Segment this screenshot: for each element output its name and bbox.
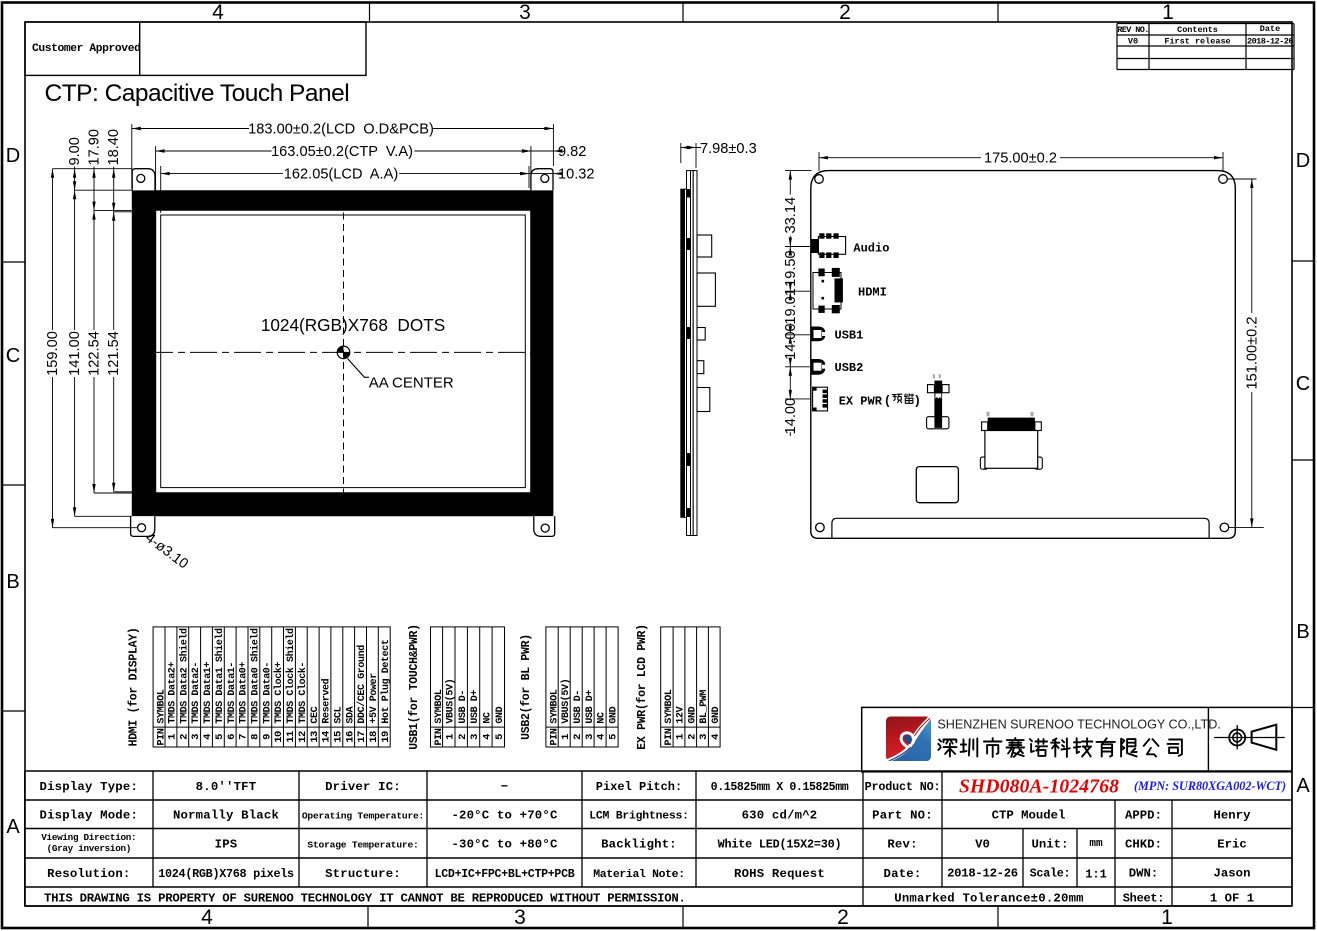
svg-text:Customer Approved: Customer Approved (32, 43, 140, 55)
svg-text:First release: First release (1164, 37, 1230, 47)
svg-text:TMDS Data2+: TMDS Data2+ (168, 662, 179, 724)
svg-text:TMDS Clock-: TMDS Clock- (297, 662, 309, 724)
svg-text:Structure:: Structure: (325, 867, 401, 881)
svg-text:D: D (1296, 150, 1310, 172)
svg-text:SHD080A-1024768: SHD080A-1024768 (959, 777, 1119, 798)
svg-text:A: A (6, 816, 20, 838)
svg-text:17.90: 17.90 (87, 129, 103, 166)
svg-text:Normally Black: Normally Black (173, 809, 280, 823)
svg-text:IPS: IPS (215, 838, 238, 852)
svg-text:2: 2 (686, 734, 698, 740)
svg-text:162.05(LCD A.A): 162.05(LCD A.A) (284, 166, 398, 182)
svg-text:12: 12 (297, 731, 309, 743)
svg-text:159.00: 159.00 (45, 331, 61, 376)
svg-text:SYMBOL: SYMBOL (664, 689, 675, 724)
svg-text:10: 10 (273, 731, 285, 743)
svg-text:-30°C to +80°C: -30°C to +80°C (451, 838, 558, 852)
svg-text:15: 15 (333, 731, 345, 743)
svg-text:Product NO:: Product NO: (865, 780, 941, 794)
svg-text:7.98±0.3: 7.98±0.3 (700, 141, 757, 157)
svg-text:): ) (914, 394, 922, 408)
svg-text:TMDS Clock+: TMDS Clock+ (273, 662, 285, 724)
svg-text:9.82: 9.82 (558, 144, 586, 160)
svg-text:Scale:: Scale: (1030, 867, 1071, 881)
svg-text:USB2: USB2 (835, 361, 864, 375)
svg-text:141.00: 141.00 (67, 331, 83, 376)
svg-text:Part NO:: Part NO: (872, 809, 933, 823)
svg-text:Unit:: Unit: (1032, 838, 1069, 852)
svg-text:1: 1 (675, 734, 687, 740)
svg-text:Date: Date (1260, 24, 1280, 34)
svg-text:(Gray inversion): (Gray inversion) (47, 843, 131, 854)
svg-text:CTP Moudel: CTP Moudel (992, 809, 1066, 823)
svg-text:3: 3 (190, 734, 202, 740)
svg-text:VBUS(5V): VBUS(5V) (560, 679, 572, 724)
svg-text:Driver IC:: Driver IC: (325, 780, 401, 794)
svg-text:1: 1 (1161, 906, 1173, 929)
svg-text:9: 9 (261, 734, 273, 740)
svg-text:PIN: PIN (549, 728, 560, 745)
svg-text:HDMI (for DISPLAY): HDMI (for DISPLAY) (128, 628, 141, 747)
svg-text:TMDS Data2-: TMDS Data2- (191, 662, 202, 724)
svg-text:TMDS Data2 Shield: TMDS Data2 Shield (178, 628, 190, 724)
svg-text:SYMBOL: SYMBOL (549, 689, 560, 724)
svg-text:(MPN: SUR80XGA002-WCT): (MPN: SUR80XGA002-WCT) (1134, 779, 1286, 793)
svg-text:Date:: Date: (884, 867, 922, 881)
svg-text:163.05±0.2(CTP V.A): 163.05±0.2(CTP V.A) (271, 144, 413, 160)
svg-text:Reserved: Reserved (321, 678, 333, 723)
svg-text:13: 13 (309, 731, 321, 743)
svg-text:CHKD:: CHKD: (1125, 838, 1162, 852)
svg-text:Eric: Eric (1217, 838, 1247, 852)
svg-text:14.00: 14.00 (783, 323, 799, 360)
svg-text:7: 7 (238, 734, 250, 740)
svg-text:1: 1 (560, 734, 572, 740)
svg-text:1: 1 (1162, 1, 1174, 24)
svg-text:1: 1 (444, 734, 456, 740)
svg-text:−: − (501, 780, 509, 794)
svg-text:Viewing Direction:: Viewing Direction: (41, 832, 136, 843)
svg-text:TMDS Data1 Shield: TMDS Data1 Shield (214, 628, 226, 724)
svg-text:B: B (6, 571, 19, 593)
svg-text:D: D (6, 145, 20, 167)
svg-text:Operating Temperature:: Operating Temperature: (302, 811, 424, 822)
svg-text:Audio: Audio (853, 241, 889, 255)
svg-text:4: 4 (482, 734, 494, 740)
svg-text:6: 6 (226, 734, 238, 740)
svg-text:LCD+IC+FPC+BL+CTP+PCB: LCD+IC+FPC+BL+CTP+PCB (435, 868, 575, 881)
svg-text:Material Note:: Material Note: (593, 869, 685, 881)
svg-text:THIS DRAWING IS PROPERTY OF SU: THIS DRAWING IS PROPERTY OF SURENOO TECH… (44, 892, 686, 906)
svg-text:USB1(for TOUCH&PWR): USB1(for TOUCH&PWR) (408, 624, 421, 749)
svg-text:121.54: 121.54 (106, 331, 122, 376)
svg-text:14.00: 14.00 (783, 398, 799, 435)
svg-text:2018-12-26: 2018-12-26 (1247, 37, 1293, 47)
svg-text:USB D+: USB D+ (585, 690, 596, 724)
svg-text:TMDS Data1+: TMDS Data1+ (203, 662, 214, 724)
svg-text:4: 4 (596, 734, 608, 740)
svg-text:1 OF 1: 1 OF 1 (1210, 892, 1254, 906)
svg-text:11: 11 (285, 731, 297, 743)
svg-text:CTP: Capacitive Touch Panel: CTP: Capacitive Touch Panel (45, 80, 350, 107)
svg-text:18: 18 (368, 731, 380, 743)
svg-text:TMDS Data0 Shield: TMDS Data0 Shield (250, 628, 262, 724)
svg-text:Resolution:: Resolution: (47, 867, 130, 881)
svg-text:VBUS(5V): VBUS(5V) (444, 679, 456, 724)
svg-text:3: 3 (514, 906, 526, 929)
svg-text:(: ( (884, 394, 892, 408)
svg-text:3: 3 (584, 734, 596, 740)
svg-text:LCM Brightness:: LCM Brightness: (589, 811, 689, 823)
svg-text:10.32: 10.32 (558, 166, 595, 182)
svg-text:4: 4 (202, 734, 214, 740)
svg-text:SYMBOL: SYMBOL (156, 689, 167, 724)
svg-text:19.01: 19.01 (783, 288, 799, 325)
svg-text:630 cd/m^2: 630 cd/m^2 (742, 809, 818, 823)
svg-text:BL_PWM: BL_PWM (699, 690, 710, 724)
svg-text:Contents: Contents (1177, 25, 1218, 35)
svg-text:17: 17 (356, 731, 368, 743)
svg-text:5: 5 (494, 734, 506, 740)
svg-text:2: 2 (178, 734, 190, 740)
svg-text:2: 2 (837, 906, 849, 929)
svg-text:4: 4 (201, 906, 213, 929)
svg-text:EX PWR(for LCD PWR): EX PWR(for LCD PWR) (636, 624, 649, 749)
svg-text:2018-12-26: 2018-12-26 (947, 867, 1018, 881)
svg-text:C: C (6, 345, 20, 367)
svg-text:SCL: SCL (334, 706, 345, 723)
svg-text:33.14: 33.14 (783, 197, 799, 234)
svg-text:B: B (1296, 621, 1309, 643)
svg-text:GND: GND (495, 706, 506, 723)
svg-text:GND: GND (687, 706, 698, 723)
svg-text:1024(RGB)X768 DOTS: 1024(RGB)X768 DOTS (261, 315, 445, 335)
svg-text:2: 2 (457, 734, 469, 740)
svg-text:PIN: PIN (664, 728, 675, 745)
svg-text:14: 14 (321, 731, 333, 743)
svg-text:GND: GND (711, 706, 722, 723)
svg-text:SHENZHEN SURENOO TECHNOLOGY CO: SHENZHEN SURENOO TECHNOLOGY CO.,LTD. (937, 718, 1220, 732)
svg-text:4: 4 (212, 1, 224, 24)
svg-text:NC: NC (597, 712, 608, 724)
svg-text:USB D-: USB D- (458, 690, 469, 724)
svg-text:USB1: USB1 (835, 329, 864, 343)
svg-text:REV NO.: REV NO. (1117, 25, 1149, 35)
svg-text:USB D+: USB D+ (470, 690, 481, 724)
svg-text:2: 2 (572, 734, 584, 740)
svg-text:+5V Power: +5V Power (369, 673, 380, 724)
svg-text:USB2(for BL PWR): USB2(for BL PWR) (520, 634, 533, 740)
svg-text:AA CENTER: AA CENTER (369, 374, 454, 391)
svg-text:GND: GND (609, 706, 620, 723)
svg-text:Jason: Jason (1214, 867, 1251, 881)
svg-text:V0: V0 (975, 838, 990, 852)
svg-text:122.54: 122.54 (87, 331, 103, 376)
svg-text:3: 3 (698, 734, 710, 740)
svg-text:USB D-: USB D- (573, 690, 584, 724)
svg-text:TMDS Data1-: TMDS Data1- (227, 662, 238, 724)
svg-text:4: 4 (710, 734, 722, 740)
svg-text:-20°C to +70°C: -20°C to +70°C (451, 809, 558, 823)
svg-text:White LED(15X2=30): White LED(15X2=30) (718, 838, 842, 852)
svg-text:3: 3 (469, 734, 481, 740)
svg-text:151.00±0.2: 151.00±0.2 (1245, 317, 1261, 390)
svg-text:Backlight:: Backlight: (601, 838, 677, 852)
svg-text:C: C (1296, 373, 1310, 395)
svg-text:9.00: 9.00 (67, 137, 83, 165)
svg-text:APPD:: APPD: (1125, 809, 1162, 823)
svg-text:TMDS Clock Shield: TMDS Clock Shield (285, 628, 297, 724)
svg-text:TMDS Data0-: TMDS Data0- (262, 662, 273, 724)
svg-text:SYMBOL: SYMBOL (434, 689, 445, 724)
svg-text:mm: mm (1089, 838, 1103, 850)
svg-text:TMDS Data0+: TMDS Data0+ (239, 662, 250, 724)
svg-text:12V: 12V (676, 706, 687, 723)
svg-text:ROHS Request: ROHS Request (734, 867, 825, 881)
svg-text:Storage Temperature:: Storage Temperature: (307, 840, 418, 851)
svg-text:Rev:: Rev: (887, 838, 917, 852)
svg-text:Hot Plug Detect: Hot Plug Detect (380, 639, 392, 723)
svg-text:DWN:: DWN: (1129, 867, 1159, 881)
svg-text:V0: V0 (1128, 37, 1138, 47)
svg-text:Pixel Pitch:: Pixel Pitch: (596, 780, 682, 794)
svg-text:8: 8 (250, 734, 262, 740)
svg-text:Display Mode:: Display Mode: (40, 809, 139, 823)
svg-text:3: 3 (519, 1, 531, 24)
svg-text:19.50: 19.50 (783, 250, 799, 287)
svg-text:1: 1 (167, 734, 179, 740)
svg-text:2: 2 (839, 1, 851, 24)
svg-text:SDA: SDA (345, 706, 356, 723)
svg-text:19: 19 (380, 731, 392, 743)
svg-text:8.0''TFT: 8.0''TFT (196, 780, 257, 794)
svg-text:A: A (1296, 775, 1310, 797)
svg-text:Sheet:: Sheet: (1123, 892, 1164, 906)
svg-text:DDC/CEC Ground: DDC/CEC Ground (356, 645, 368, 724)
svg-text:16: 16 (344, 731, 356, 743)
svg-text:Display Type:: Display Type: (40, 780, 139, 794)
svg-text:5: 5 (608, 734, 620, 740)
svg-text:18.40: 18.40 (106, 129, 122, 166)
svg-text:EX PWR: EX PWR (839, 394, 883, 408)
svg-text:Unmarked Tolerance±0.20mm: Unmarked Tolerance±0.20mm (894, 892, 1083, 906)
svg-text:183.00±0.2(LCD O.D&PCB): 183.00±0.2(LCD O.D&PCB) (248, 121, 434, 137)
svg-text:PIN: PIN (434, 728, 445, 745)
svg-text:CEC: CEC (310, 706, 321, 723)
svg-text:175.00±0.2: 175.00±0.2 (984, 151, 1057, 167)
svg-text:HDMI: HDMI (858, 286, 887, 300)
svg-text:1:1: 1:1 (1085, 868, 1107, 882)
svg-text:0.15825mm X 0.15825mm: 0.15825mm X 0.15825mm (711, 781, 849, 794)
svg-text:1024(RGB)X768 pixels: 1024(RGB)X768 pixels (158, 867, 294, 881)
svg-text:NC: NC (483, 712, 494, 724)
svg-text:Henry: Henry (1214, 809, 1252, 823)
svg-text:5: 5 (214, 734, 226, 740)
